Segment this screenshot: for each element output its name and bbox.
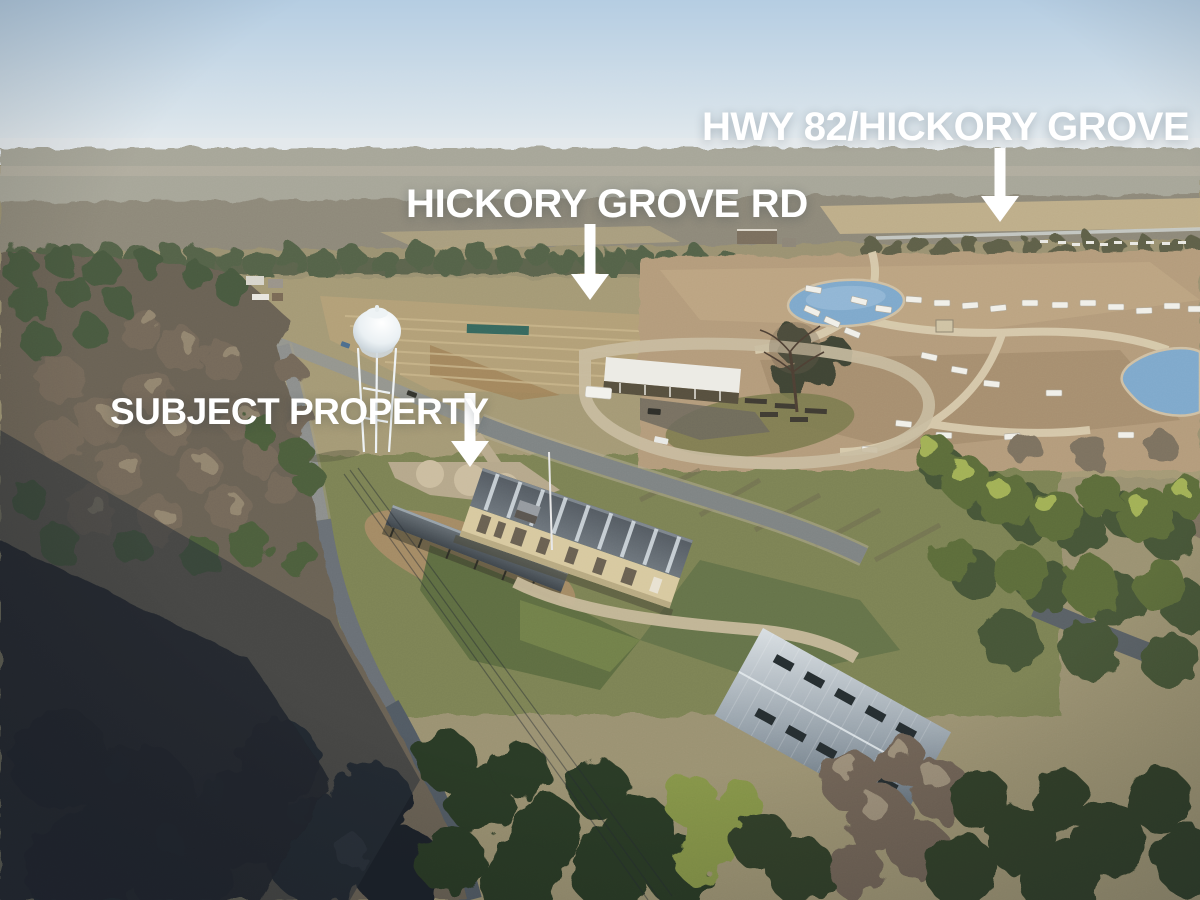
annotation-hwy82: HWY 82/HICKORY GROVE — [702, 107, 1189, 147]
annotation-hickory-grove-rd: HICKORY GROVE RD — [406, 184, 808, 224]
annotation-subject-property: SUBJECT PROPERTY — [110, 393, 489, 430]
aerial-photo: HWY 82/HICKORY GROVE HICKORY GROVE RD SU… — [0, 0, 1200, 900]
